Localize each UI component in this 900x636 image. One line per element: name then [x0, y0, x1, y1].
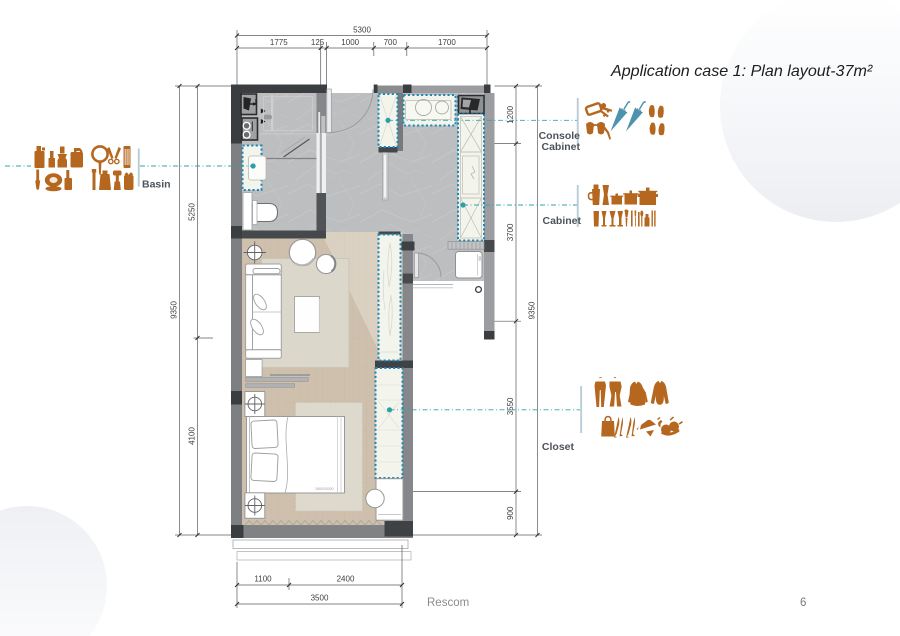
svg-text:5250: 5250: [188, 203, 197, 221]
svg-text:Basin: Basin: [142, 179, 171, 191]
svg-text:900: 900: [506, 506, 515, 520]
svg-text:4100: 4100: [188, 427, 197, 445]
svg-text:1500X2000: 1500X2000: [315, 487, 333, 491]
svg-text:3500: 3500: [311, 594, 329, 603]
svg-text:1000: 1000: [341, 38, 359, 47]
svg-text:6: 6: [800, 597, 806, 609]
svg-text:700: 700: [384, 38, 398, 47]
svg-text:1200: 1200: [506, 105, 515, 123]
svg-text:1700: 1700: [438, 38, 456, 47]
svg-text:125: 125: [311, 38, 325, 47]
svg-text:Closet: Closet: [542, 441, 575, 453]
svg-text:Application case 1: Plan layou: Application case 1: Plan layout-37m²: [610, 62, 873, 80]
svg-text:Cabinet: Cabinet: [542, 215, 581, 227]
svg-text:Rescom: Rescom: [427, 597, 469, 609]
svg-text:9350: 9350: [170, 301, 179, 319]
svg-text:3700: 3700: [506, 223, 515, 241]
svg-text:2400: 2400: [337, 575, 355, 584]
svg-text:Cabinet: Cabinet: [541, 141, 580, 153]
svg-text:1775: 1775: [270, 38, 288, 47]
svg-text:5300: 5300: [353, 26, 371, 35]
svg-text:1100: 1100: [254, 575, 272, 584]
svg-text:3550: 3550: [506, 397, 515, 415]
svg-text:9350: 9350: [528, 301, 537, 319]
